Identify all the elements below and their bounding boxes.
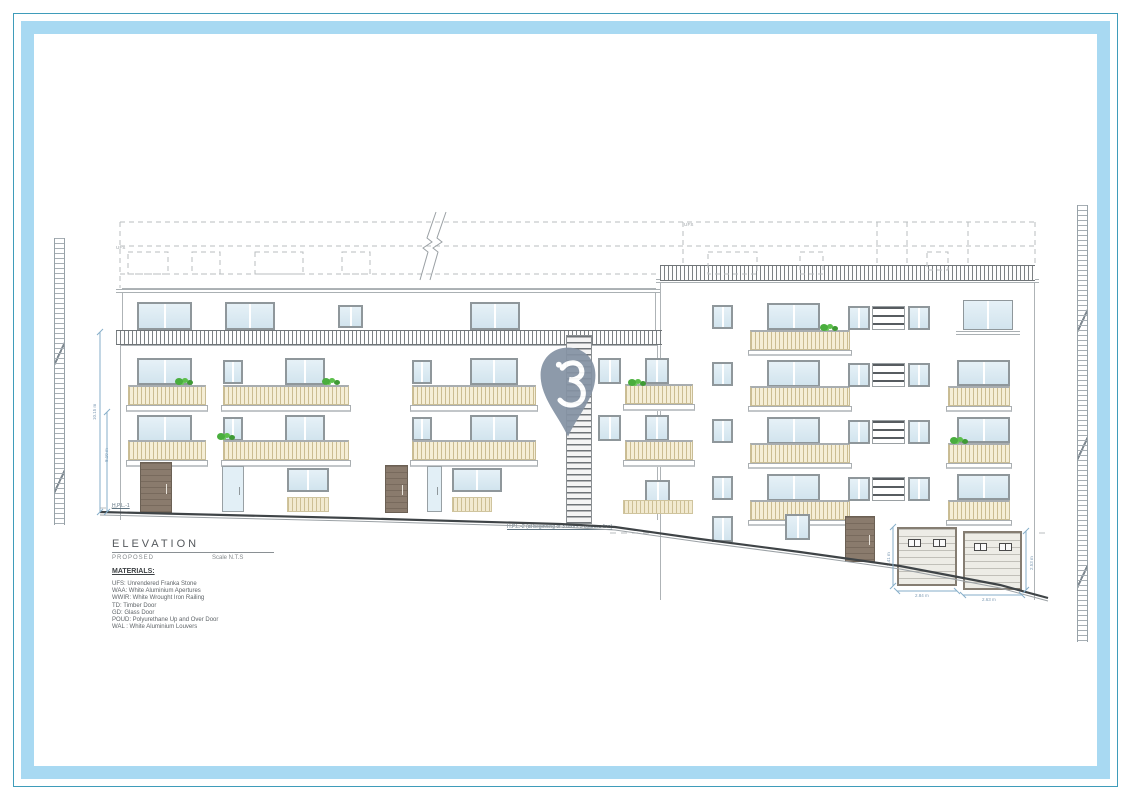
balcony-slab: [126, 405, 208, 412]
receded-floor-slab: [116, 289, 662, 293]
materials-heading: MATERIALS:: [112, 568, 155, 575]
small-window: [712, 419, 733, 443]
timber-door: [385, 465, 408, 513]
plant: [950, 437, 958, 444]
sliding-door-window: [767, 474, 820, 501]
sliding-door-window: [767, 303, 820, 330]
window: [645, 415, 669, 441]
balcony-slab: [748, 350, 852, 356]
plant: [820, 324, 828, 331]
location-pin-watermark-icon: [533, 343, 603, 439]
timber-door: [140, 462, 172, 513]
glass-window: [963, 300, 1013, 330]
window-balustrade: [623, 500, 693, 514]
small-window: [223, 360, 243, 384]
sliding-door-window: [957, 417, 1010, 443]
dimension-label: 2.53 m: [1029, 556, 1034, 570]
window: [470, 302, 520, 330]
level-label-hpl1: H.P.L.-1: [112, 503, 130, 509]
balcony-slab: [410, 405, 538, 412]
small-window: [785, 514, 810, 540]
balcony-balustrade: [128, 440, 206, 460]
dimension-label: 10.15 m: [92, 404, 97, 420]
garage-door-window: [908, 539, 921, 547]
title-underline: [112, 552, 274, 553]
balcony-slab: [221, 405, 351, 412]
small-window: [908, 477, 930, 501]
elevation-drawing-sheet: UFS UFS H.P.L.-1 H.P.L.-2 (at beginning …: [0, 0, 1131, 800]
dimension-label: 2.84 m: [915, 593, 929, 598]
window-balustrade: [452, 497, 492, 512]
balcony-balustrade: [223, 385, 349, 405]
materials-item: TD: Timber Door: [112, 603, 218, 610]
materials-item: UFS: Unrendered Franka Stone: [112, 581, 218, 588]
balcony-balustrade: [625, 384, 693, 404]
louver-panel: [872, 477, 905, 501]
small-window: [848, 363, 870, 387]
balcony-balustrade: [223, 440, 349, 460]
glass-door: [427, 466, 442, 512]
window: [452, 468, 502, 492]
break-line-symbol: [420, 212, 446, 280]
small-window: [712, 516, 733, 542]
balcony-balustrade: [750, 330, 850, 350]
sliding-door-window: [957, 474, 1010, 500]
small-window: [712, 305, 733, 329]
small-window: [412, 360, 432, 384]
louver-panel: [872, 306, 905, 330]
materials-item: WWIR: White Wrought Iron Railing: [112, 595, 218, 602]
balcony-slab: [946, 520, 1012, 526]
sliding-door-window: [285, 415, 325, 442]
small-window: [908, 420, 930, 444]
dimension-label: 2.63 m: [982, 597, 996, 602]
small-window: [338, 305, 363, 328]
sliding-door-window: [137, 358, 192, 385]
materials-item: WAL : White Aluminium Louvers: [112, 624, 218, 631]
garage-door-window: [974, 543, 987, 551]
materials-item: POUD: Polyurethane Up and Over Door: [112, 617, 218, 624]
balcony-balustrade: [128, 385, 206, 405]
dimension-label: 2.41 m: [886, 552, 891, 566]
sliding-door-window: [137, 415, 192, 442]
balcony-balustrade: [948, 386, 1010, 406]
window: [225, 302, 275, 330]
measuring-rod-right: [1077, 205, 1088, 642]
materials-item: GD: Glass Door: [112, 610, 218, 617]
window-sill-slab: [956, 331, 1020, 335]
balcony-slab: [748, 463, 852, 469]
louver-panel: [872, 363, 905, 387]
sliding-door-window: [470, 415, 518, 442]
balcony-balustrade: [948, 443, 1010, 463]
small-window: [848, 306, 870, 330]
sliding-door-window: [470, 358, 518, 385]
balcony-balustrade: [750, 386, 850, 406]
plant: [175, 378, 183, 385]
scale-label: Scale N.T.S: [212, 555, 243, 561]
material-tag: UFS: [684, 222, 694, 227]
sliding-door-window: [767, 360, 820, 387]
plant: [217, 433, 225, 440]
window: [137, 302, 192, 330]
glass-door: [222, 466, 244, 512]
garage-door: [897, 527, 957, 586]
sliding-door-window: [767, 417, 820, 444]
small-window: [223, 417, 243, 441]
measuring-rod-left: [54, 238, 65, 525]
balcony-balustrade: [412, 440, 536, 460]
garage-door: [963, 531, 1022, 590]
small-window: [908, 306, 930, 330]
garage-door-window: [933, 539, 946, 547]
louver-panel: [872, 420, 905, 444]
materials-list: UFS: Unrendered Franka Stone WAA: White …: [112, 581, 218, 631]
small-window: [712, 362, 733, 386]
small-window: [848, 477, 870, 501]
dimension-label: 8.10 m: [104, 448, 109, 462]
small-window: [848, 420, 870, 444]
balcony-slab: [946, 463, 1012, 469]
balcony-balustrade: [625, 440, 693, 460]
small-window: [908, 363, 930, 387]
sliding-door-window: [285, 358, 325, 385]
plant: [628, 379, 636, 386]
balcony-balustrade: [750, 443, 850, 463]
garage-door-window: [999, 543, 1012, 551]
balcony-balustrade: [948, 500, 1010, 520]
timber-door: [845, 516, 875, 562]
window: [287, 468, 329, 492]
window: [645, 358, 669, 384]
balcony-slab: [748, 406, 852, 412]
small-window: [412, 417, 432, 441]
sliding-door-window: [957, 360, 1010, 386]
balcony-slab: [623, 404, 695, 411]
materials-item: WAA: White Aluminium Apertures: [112, 588, 218, 595]
window-balustrade: [287, 497, 329, 512]
material-tag: UFS: [116, 245, 126, 250]
small-window: [712, 476, 733, 500]
level-note-hpl2: H.P.L.-2 (at beginning of 3 floors 3 cou…: [507, 524, 612, 530]
balcony-slab: [623, 460, 695, 467]
balcony-balustrade: [412, 385, 536, 405]
drawing-title: ELEVATION: [112, 538, 199, 550]
drawing-subtitle: PROPOSED: [112, 555, 154, 561]
roof-terrace-railing-right: [660, 265, 1035, 281]
plant: [322, 378, 330, 385]
balcony-slab: [946, 406, 1012, 412]
